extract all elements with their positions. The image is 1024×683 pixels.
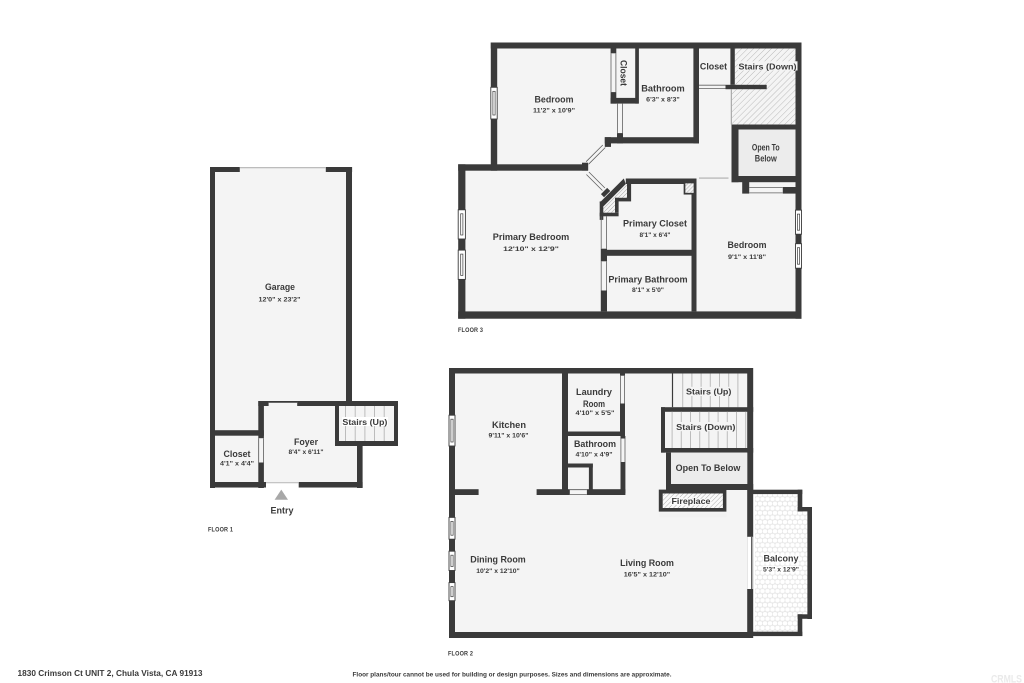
svg-text:Floor plans/tour cannot be use: Floor plans/tour cannot be used for buil…	[353, 671, 672, 678]
svg-text:16'5" x 12'10": 16'5" x 12'10"	[624, 571, 670, 578]
svg-text:Open To: Open To	[752, 142, 780, 152]
svg-text:Laundry: Laundry	[576, 387, 612, 397]
svg-text:9'1" x 11'8": 9'1" x 11'8"	[728, 254, 766, 261]
svg-text:Foyer: Foyer	[294, 437, 318, 447]
svg-text:Bathroom: Bathroom	[574, 439, 616, 449]
svg-text:4'10" x 5'5": 4'10" x 5'5"	[576, 410, 615, 417]
svg-text:Bathroom: Bathroom	[641, 84, 685, 94]
svg-text:Kitchen: Kitchen	[492, 420, 526, 430]
svg-text:FLOOR 2: FLOOR 2	[448, 651, 473, 658]
svg-text:Entry: Entry	[271, 506, 295, 517]
svg-text:9'11" x 10'6": 9'11" x 10'6"	[489, 433, 529, 440]
svg-text:12'10" x 12'9": 12'10" x 12'9"	[503, 246, 559, 253]
svg-text:5'3" x 12'9": 5'3" x 12'9"	[763, 566, 799, 573]
svg-text:Closet: Closet	[619, 60, 629, 86]
svg-text:4'10" x 4'9": 4'10" x 4'9"	[576, 451, 613, 458]
svg-text:Living Room: Living Room	[620, 558, 674, 568]
svg-text:Primary Closet: Primary Closet	[623, 218, 687, 228]
svg-text:Bedroom: Bedroom	[728, 240, 767, 250]
svg-text:Closet: Closet	[224, 449, 251, 459]
svg-text:Primary Bedroom: Primary Bedroom	[493, 232, 570, 242]
svg-text:FLOOR 3: FLOOR 3	[458, 327, 483, 334]
svg-text:8'1" x 5'0": 8'1" x 5'0"	[632, 287, 664, 294]
svg-text:Below: Below	[755, 154, 778, 164]
svg-text:FLOOR 1: FLOOR 1	[208, 527, 233, 534]
svg-text:Closet: Closet	[700, 62, 727, 72]
svg-text:Primary Bathroom: Primary Bathroom	[608, 274, 687, 284]
svg-text:Stairs (Down): Stairs (Down)	[676, 422, 735, 432]
svg-text:4'1" x 4'4": 4'1" x 4'4"	[220, 461, 254, 468]
svg-text:Garage: Garage	[265, 282, 295, 292]
svg-text:10'2" x 12'10": 10'2" x 12'10"	[476, 568, 520, 575]
svg-text:Fireplace: Fireplace	[672, 496, 711, 506]
svg-text:Stairs (Down): Stairs (Down)	[739, 61, 797, 71]
svg-text:Dining Room: Dining Room	[470, 555, 526, 565]
svg-text:Balcony: Balcony	[764, 554, 799, 564]
svg-text:Bedroom: Bedroom	[535, 94, 574, 104]
svg-text:6'3" x 8'3": 6'3" x 8'3"	[646, 97, 680, 104]
svg-text:Open To Below: Open To Below	[676, 463, 742, 473]
svg-text:Room: Room	[583, 399, 605, 409]
svg-text:12'0" x 23'2": 12'0" x 23'2"	[259, 297, 301, 304]
svg-text:8'1" x 6'4": 8'1" x 6'4"	[640, 232, 671, 239]
svg-text:Stairs (Up): Stairs (Up)	[686, 387, 732, 397]
svg-text:CRMLS: CRMLS	[991, 674, 1022, 683]
svg-text:Stairs (Up): Stairs (Up)	[342, 417, 387, 427]
svg-text:11'2" x 10'9": 11'2" x 10'9"	[533, 108, 575, 115]
svg-text:8'4" x 6'11": 8'4" x 6'11"	[289, 449, 324, 456]
svg-text:1830 Crimson Ct UNIT 2, Chula: 1830 Crimson Ct UNIT 2, Chula Vista, CA …	[18, 668, 203, 678]
